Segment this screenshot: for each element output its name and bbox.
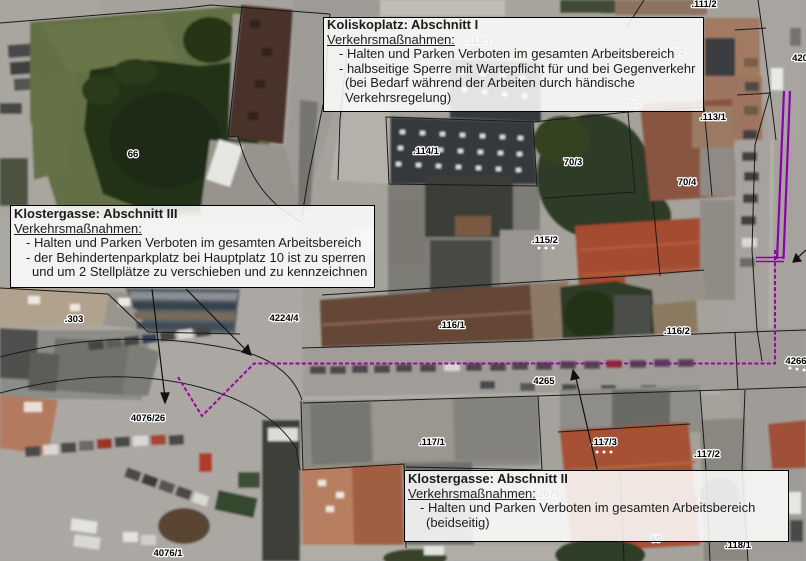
svg-text:.116/1: .116/1 bbox=[439, 320, 466, 331]
svg-text:.116/2: .116/2 bbox=[664, 326, 690, 337]
svg-text:.117/2: .117/2 bbox=[694, 449, 720, 460]
svg-text:4076/26: 4076/26 bbox=[131, 413, 165, 424]
svg-text:420: 420 bbox=[792, 53, 806, 64]
svg-text:4224/4: 4224/4 bbox=[269, 313, 299, 324]
svg-text:.113/1: .113/1 bbox=[700, 112, 727, 123]
svg-text:4076/1: 4076/1 bbox=[153, 548, 183, 559]
svg-text:.114/1: .114/1 bbox=[413, 146, 440, 157]
svg-text:.303: .303 bbox=[65, 314, 84, 325]
svg-text:.115/2: .115/2 bbox=[532, 235, 558, 246]
svg-text:66: 66 bbox=[128, 149, 139, 160]
svg-text:70/3: 70/3 bbox=[564, 157, 583, 168]
svg-text:.111/2: .111/2 bbox=[691, 0, 716, 10]
svg-text:4265: 4265 bbox=[533, 376, 555, 387]
svg-text:4266: 4266 bbox=[785, 356, 806, 367]
svg-text:70/4: 70/4 bbox=[678, 177, 697, 188]
svg-text:.117/1: .117/1 bbox=[419, 437, 446, 448]
svg-text:.117/3: .117/3 bbox=[591, 437, 617, 448]
